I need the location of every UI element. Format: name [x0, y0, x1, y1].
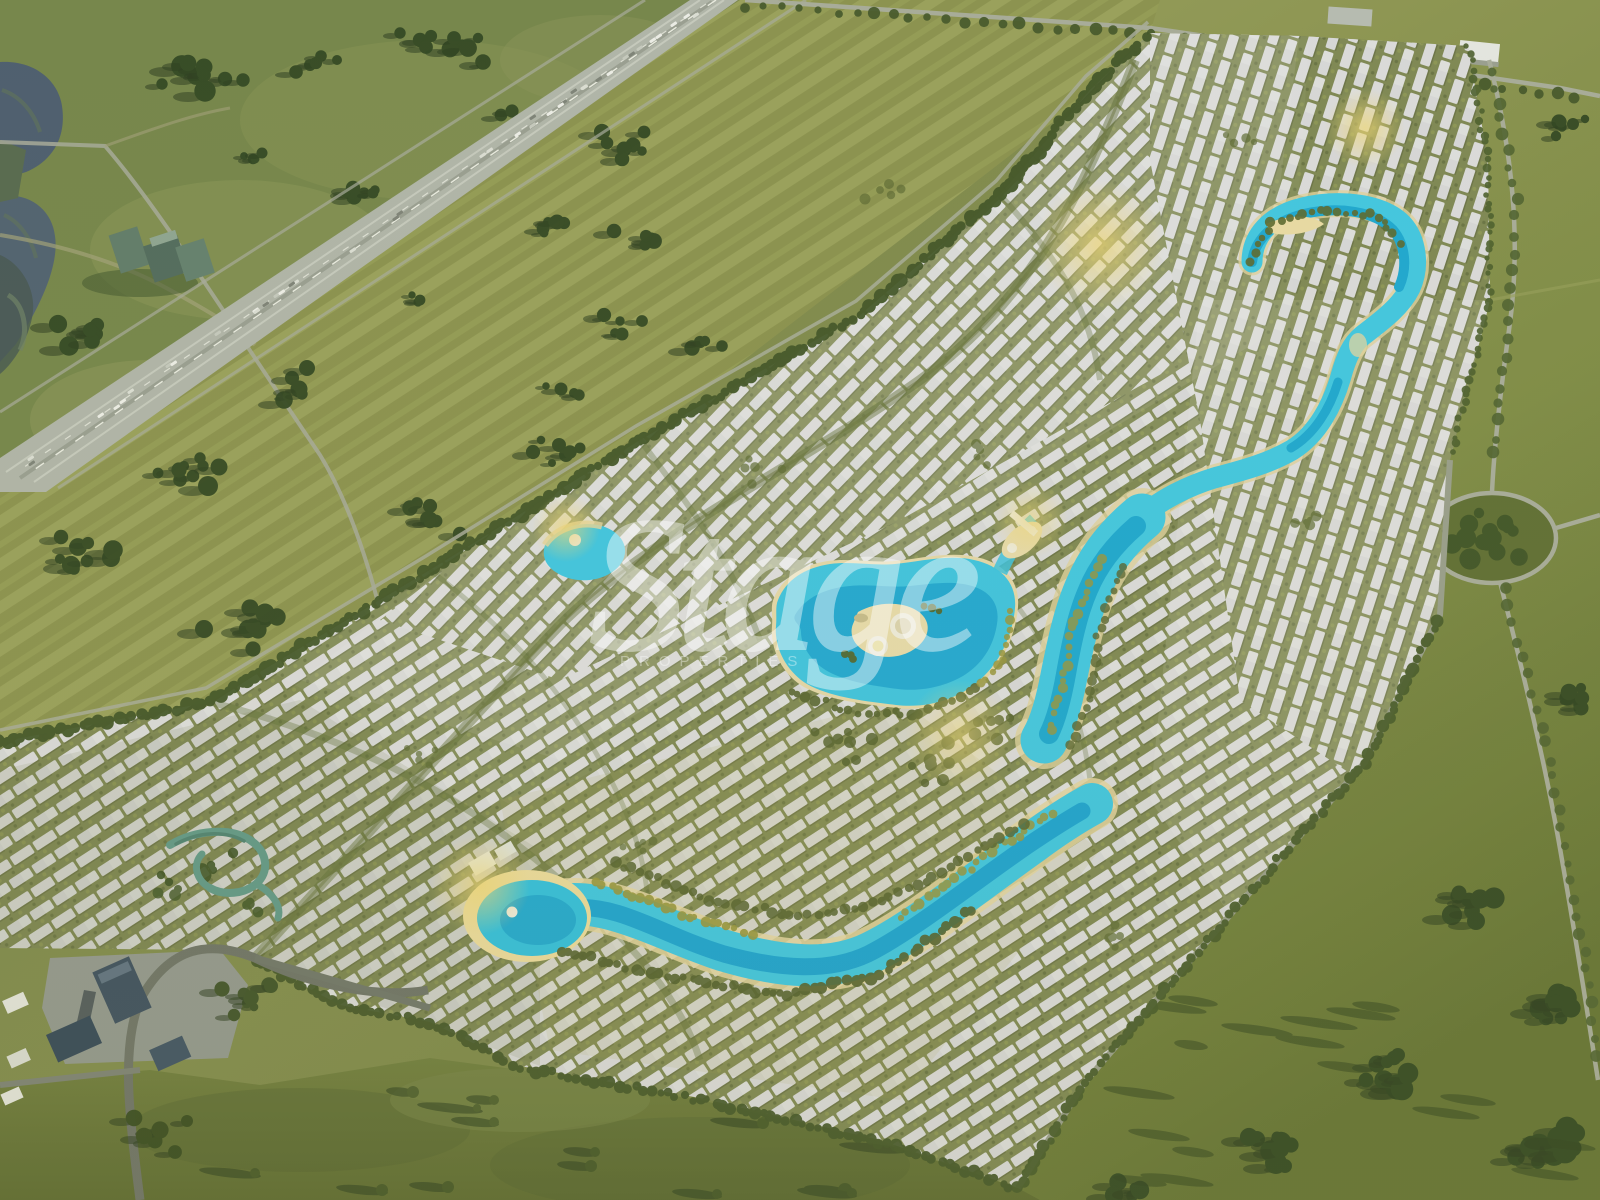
svg-text:PROPERTIES: PROPERTIES	[620, 653, 806, 670]
